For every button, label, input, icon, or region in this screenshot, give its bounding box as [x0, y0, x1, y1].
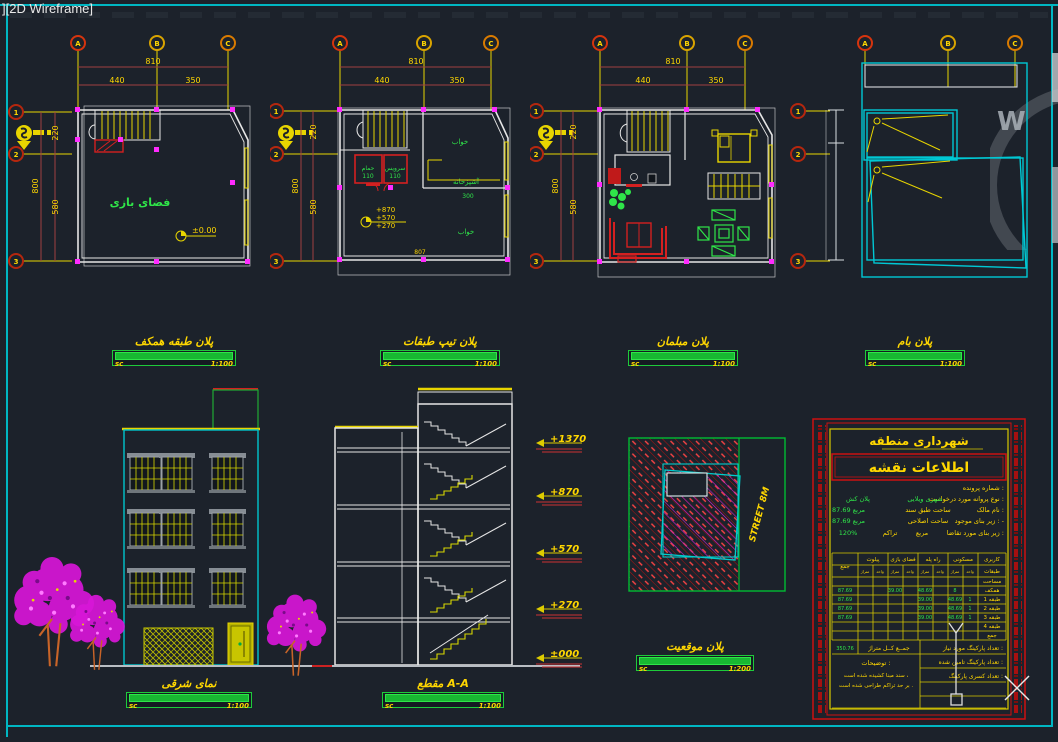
dimension-bracket — [826, 110, 844, 260]
column-bubbles: A B C — [71, 36, 235, 50]
scale-sc: sc — [115, 361, 123, 367]
svg-text:3: 3 — [274, 258, 279, 266]
svg-text:پلان کش: پلان کش — [846, 495, 870, 503]
svg-text:1: 1 — [796, 108, 801, 116]
stairs — [620, 110, 670, 152]
svg-text:C: C — [1012, 40, 1017, 48]
svg-text:A: A — [862, 40, 868, 48]
scale-bar: sc1:100 — [380, 350, 500, 366]
section-title: مقطع A-A — [382, 678, 504, 691]
svg-text:580: 580 — [309, 199, 318, 214]
scale-bar-fill — [385, 694, 501, 702]
svg-text:1: 1 — [968, 597, 971, 603]
scale-bar-fill — [868, 352, 962, 360]
scalebar-furniture-plan: پلان مبلمان sc1:100 — [628, 336, 738, 366]
scale-sc: sc — [385, 703, 393, 709]
svg-text:واحد: واحد — [876, 569, 884, 574]
svg-text:39.00: 39.00 — [918, 597, 932, 603]
svg-text:فضای بازی: فضای بازی — [890, 557, 916, 563]
plan-ground-floor-drawing: A B C 1 2 3 810 440350 220 800 580 — [0, 30, 270, 330]
svg-text:B: B — [421, 40, 426, 48]
svg-text:شماره پرونده :: شماره پرونده : — [963, 484, 1004, 492]
svg-text:ساحت طبق سند: ساحت طبق سند — [905, 506, 950, 514]
scale-bar-fill — [383, 352, 497, 360]
svg-text:810: 810 — [408, 57, 423, 66]
svg-text:واحد: واحد — [966, 569, 974, 574]
table-row-labels: مساحت همکف طبقه 1 طبقه 2 طبقه 3 طبقه 4 ج… — [983, 579, 1001, 639]
svg-text:راه پله: راه پله — [925, 557, 940, 563]
svg-text:800: 800 — [291, 178, 300, 193]
svg-text:جمع: جمع — [987, 633, 997, 639]
titleblock-subheader: اطلاعات نقشه — [869, 460, 969, 476]
row-bubbles: 1 2 3 — [791, 104, 805, 268]
svg-text:39.00: 39.00 — [918, 615, 932, 621]
svg-text:±000: ±000 — [550, 649, 579, 660]
scale-sc: sc — [868, 361, 876, 367]
scalebar-section-aa: مقطع A-A sc1:100 — [382, 678, 504, 708]
svg-text:120%: 120% — [839, 529, 858, 537]
table-headers: کاربری مسکونی راه پله فضای بازی پیلوت جم… — [840, 556, 1000, 575]
svg-text:طبقات: طبقات — [984, 569, 1000, 575]
titleblock-left-text-strip — [816, 425, 826, 713]
level-1370: +1370 — [536, 434, 586, 452]
plan-roof-drawing: A B C 1 2 3 — [790, 30, 1058, 330]
svg-text:1: 1 — [534, 108, 539, 116]
svg-text:متراژ: متراژ — [950, 569, 960, 574]
svg-text:3: 3 — [14, 258, 19, 266]
stairs — [357, 110, 407, 148]
svg-text:A: A — [337, 40, 343, 48]
svg-text:تراکم: تراکم — [883, 529, 898, 537]
svg-text:87.69 مربع: 87.69 مربع — [832, 506, 865, 514]
svg-text:+570: +570 — [550, 544, 579, 555]
section-marker — [538, 125, 573, 150]
scalebar-east-elevation: نمای شرقی sc1:100 — [126, 678, 252, 708]
scale-value: 1:200 — [729, 666, 751, 672]
scalebar-typical-plan: پلان تیپ طبقات sc1:100 — [380, 336, 500, 366]
svg-text:توضیحات :: توضیحات : — [861, 659, 890, 667]
svg-text:بر حد تراکم طراحی شده است .: بر حد تراکم طراحی شده است . — [839, 682, 914, 689]
level-marker: +870 +570 +270 — [361, 206, 406, 230]
scalebar-ground-plan: پلان طبقه همکف sc1:100 — [112, 336, 236, 366]
level-870: +870 — [536, 487, 582, 505]
stair-flights — [424, 422, 506, 659]
plan-typical-floors-drawing: A B C 1 2 3 810 440350 220 800 580 — [270, 30, 520, 330]
svg-text:87.69 مربع: 87.69 مربع — [832, 517, 865, 525]
svg-text:48.69: 48.69 — [948, 615, 962, 621]
kitchen-counter — [428, 142, 508, 237]
svg-text:48.69: 48.69 — [948, 606, 962, 612]
svg-text:48.69: 48.69 — [948, 597, 962, 603]
svg-text:1: 1 — [14, 109, 19, 117]
svg-text:800: 800 — [31, 178, 40, 193]
svg-text:+270: +270 — [550, 600, 579, 611]
level-000: ±000 — [536, 649, 582, 667]
svg-text:8: 8 — [953, 588, 956, 594]
svg-text:2: 2 — [796, 151, 801, 159]
scale-value: 1:100 — [211, 361, 233, 367]
svg-text:1: 1 — [274, 108, 279, 116]
svg-text:ساحت اصلاحی: ساحت اصلاحی — [908, 517, 949, 525]
svg-text:810: 810 — [145, 57, 160, 66]
svg-text:B: B — [154, 40, 159, 48]
svg-text:220: 220 — [309, 124, 318, 139]
svg-text:کاربری: کاربری — [984, 556, 1000, 563]
svg-text:87.69: 87.69 — [838, 615, 852, 621]
viewport-border-top — [0, 4, 1058, 6]
svg-text:جمــع کــل متراژ: جمــع کــل متراژ — [867, 645, 910, 652]
column-bubbles: A B C — [858, 36, 1022, 50]
svg-text:متراژ: متراژ — [920, 569, 930, 574]
scale-sc: sc — [631, 361, 639, 367]
svg-text:واحد: واحد — [906, 569, 914, 574]
parapet-strip — [865, 65, 1017, 87]
svg-text:زیر بنای مورد تقاضا :: زیر بنای مورد تقاضا : — [947, 529, 1004, 537]
dining-set — [698, 210, 749, 256]
svg-text:تعداد پارکینگ مورد نیاز :: تعداد پارکینگ مورد نیاز : — [942, 644, 1003, 652]
svg-text:طبقه 4: طبقه 4 — [983, 624, 1000, 630]
svg-text:جمع: جمع — [840, 564, 850, 570]
svg-text:2: 2 — [274, 151, 279, 159]
dimension-text: 810 440350 220 800 580 — [551, 57, 724, 215]
svg-text:350: 350 — [185, 76, 200, 85]
svg-text:+870: +870 — [376, 206, 395, 214]
svg-text:مساحت: مساحت — [983, 579, 1001, 585]
svg-text:خواب: خواب — [452, 138, 468, 146]
scale-bar-fill — [639, 657, 751, 665]
level-markers: +1370 +870 +570 +270 ±000 — [536, 434, 586, 667]
column-bubbles: A B C — [593, 36, 752, 50]
titleblock: شهرداری منطقه اطلاعات نقشه شماره پرونده … — [810, 418, 1058, 742]
tree — [267, 595, 326, 676]
svg-text:B: B — [684, 40, 689, 48]
scale-bar: sc1:100 — [126, 692, 252, 708]
svg-text:1: 1 — [968, 615, 971, 621]
section-marker — [16, 125, 51, 150]
svg-text:+270: +270 — [376, 222, 395, 230]
site-title: پلان موقعیت — [636, 641, 754, 654]
svg-text:580: 580 — [569, 199, 578, 214]
scale-value: 1:100 — [713, 361, 735, 367]
scale-value: 1:100 — [227, 703, 249, 709]
svg-text:3: 3 — [534, 258, 539, 266]
roof-outline — [862, 63, 1027, 277]
svg-text:A: A — [75, 40, 81, 48]
svg-text:87.69: 87.69 — [838, 597, 852, 603]
svg-text:3: 3 — [796, 258, 801, 266]
site-plan-drawing: STREET 8M — [615, 430, 805, 645]
svg-text:خواب: خواب — [458, 228, 474, 236]
svg-text:متراژ: متراژ — [890, 569, 900, 574]
svg-text:سند مبنا کشیده شده است ،: سند مبنا کشیده شده است ، — [844, 672, 909, 679]
svg-text:350.76: 350.76 — [836, 646, 854, 652]
windows — [127, 453, 246, 608]
svg-text:350: 350 — [449, 76, 464, 85]
svg-text:زیر بنای موجود : -: زیر بنای موجود : - — [955, 517, 1005, 525]
svg-text:C: C — [488, 40, 493, 48]
scalebar-roof-plan: پلان بام sc1:100 — [865, 336, 965, 366]
svg-text:87.69: 87.69 — [838, 606, 852, 612]
svg-text:A: A — [597, 40, 603, 48]
sofa-set — [610, 218, 666, 262]
svg-text:2: 2 — [14, 151, 19, 159]
titleblock-header: شهرداری منطقه — [869, 434, 968, 448]
street-label: STREET 8M — [748, 486, 772, 543]
svg-text:حمام: حمام — [362, 165, 375, 172]
east-elevation-drawing — [0, 385, 335, 680]
dimension-text: 810 440350 220 800 580 — [31, 57, 201, 215]
plants — [609, 189, 631, 210]
scale-bar: sc1:200 — [636, 655, 754, 671]
view-label[interactable]: ][2D Wireframe] — [2, 1, 93, 16]
elevation-title: نمای شرقی — [126, 678, 252, 691]
entry-door — [228, 623, 253, 665]
scalebar-site-plan: پلان موقعیت sc1:200 — [636, 641, 754, 671]
scale-sc: sc — [383, 361, 391, 367]
scale-bar-fill — [129, 694, 249, 702]
svg-text:واحد: واحد — [936, 569, 944, 574]
level-270: +270 — [536, 600, 582, 618]
scale-bar-fill — [115, 352, 233, 360]
svg-text:B: B — [945, 40, 950, 48]
svg-text:39.00: 39.00 — [888, 588, 902, 594]
scale-value: 1:100 — [475, 361, 497, 367]
svg-text:440: 440 — [635, 76, 650, 85]
plan-title: پلان طبقه همکف — [112, 336, 236, 349]
snap-nodes — [75, 107, 250, 264]
svg-text:طبقه 1: طبقه 1 — [983, 597, 1000, 603]
void-area — [667, 473, 707, 496]
svg-text:810: 810 — [665, 57, 680, 66]
dimension-lines — [561, 67, 745, 261]
plan-walls — [78, 106, 250, 266]
svg-text:1: 1 — [968, 606, 971, 612]
svg-text:+870: +870 — [550, 487, 579, 498]
svg-text:220: 220 — [51, 125, 60, 140]
scale-sc: sc — [129, 703, 137, 709]
scale-bar: sc1:100 — [112, 350, 236, 366]
scale-bar: sc1:100 — [865, 350, 965, 366]
room-label-open-space: فضای بازی — [110, 196, 171, 209]
svg-text:تعداد کسری پارکینگ :: تعداد کسری پارکینگ : — [949, 672, 1003, 680]
svg-text:سرویس: سرویس — [385, 165, 406, 172]
svg-text:C: C — [742, 40, 747, 48]
svg-text:800: 800 — [551, 178, 560, 193]
scale-sc: sc — [639, 666, 647, 672]
info-rows: شماره پرونده : نوع پروانه مورد درخواست :… — [832, 484, 1005, 537]
column-bubbles: A B C — [333, 36, 498, 50]
svg-text:طبقه 2: طبقه 2 — [983, 606, 1000, 612]
svg-text:آشپزخانه: آشپزخانه — [453, 177, 480, 186]
bed — [712, 130, 757, 162]
scale-bar: sc1:100 — [382, 692, 504, 708]
svg-text:±0.00: ±0.00 — [192, 226, 217, 235]
svg-text:110: 110 — [389, 173, 401, 180]
svg-text:440: 440 — [109, 76, 124, 85]
plan-title: پلان مبلمان — [628, 336, 738, 349]
section-aa-drawing: +1370 +870 +570 +270 ±000 — [330, 380, 625, 680]
roof-detail — [213, 389, 258, 429]
svg-text:+1370: +1370 — [550, 434, 586, 445]
balcony-stair — [708, 173, 760, 199]
level-marker: ±0.00 — [176, 226, 217, 241]
svg-text:350: 350 — [708, 76, 723, 85]
plan-furniture-drawing: A B C 1 2 3 810 440350 220 800 580 — [530, 30, 790, 330]
svg-text:110: 110 — [362, 173, 374, 180]
svg-text:48.69: 48.69 — [918, 588, 932, 594]
grid-dashes — [10, 12, 1048, 18]
scale-value: 1:100 — [479, 703, 501, 709]
scale-value: 1:100 — [940, 361, 962, 367]
garage-door — [144, 628, 213, 665]
stairs — [89, 110, 160, 152]
level-570: +570 — [536, 544, 582, 562]
svg-text:2: 2 — [534, 151, 539, 159]
scale-bar: sc1:100 — [628, 350, 738, 366]
plan-title: پلان تیپ طبقات — [380, 336, 500, 349]
drawing-canvas[interactable]: ][2D Wireframe] W A B C 1 2 3 — [0, 0, 1058, 742]
svg-text:580: 580 — [51, 199, 60, 214]
section-marker — [278, 125, 313, 150]
svg-text:39.00: 39.00 — [918, 606, 932, 612]
titleblock-right-text-strip — [1012, 425, 1022, 713]
svg-text:پیلوت: پیلوت — [866, 557, 879, 563]
svg-text:220: 220 — [569, 124, 578, 139]
svg-text:87.69: 87.69 — [838, 588, 852, 594]
svg-text:300: 300 — [462, 193, 474, 200]
bottom-dim: 807 — [414, 249, 426, 256]
svg-text:همکف: همکف — [985, 587, 1000, 594]
scale-bar-fill — [631, 352, 735, 360]
svg-text:متراژ: متراژ — [860, 569, 870, 574]
svg-text:طبقه 3: طبقه 3 — [983, 615, 1000, 621]
svg-text:+570: +570 — [376, 214, 395, 222]
svg-text:مسکونی: مسکونی — [953, 556, 973, 563]
svg-text:تعداد پارکینگ تامین شده :: تعداد پارکینگ تامین شده : — [939, 658, 1003, 666]
svg-text:نام مالک :: نام مالک : — [977, 506, 1004, 514]
svg-text:شهری ویلایی: شهری ویلایی — [907, 495, 942, 503]
plan-title: پلان بام — [865, 336, 965, 349]
svg-text:مربع: مربع — [916, 529, 928, 537]
svg-text:C: C — [225, 40, 230, 48]
svg-text:440: 440 — [374, 76, 389, 85]
